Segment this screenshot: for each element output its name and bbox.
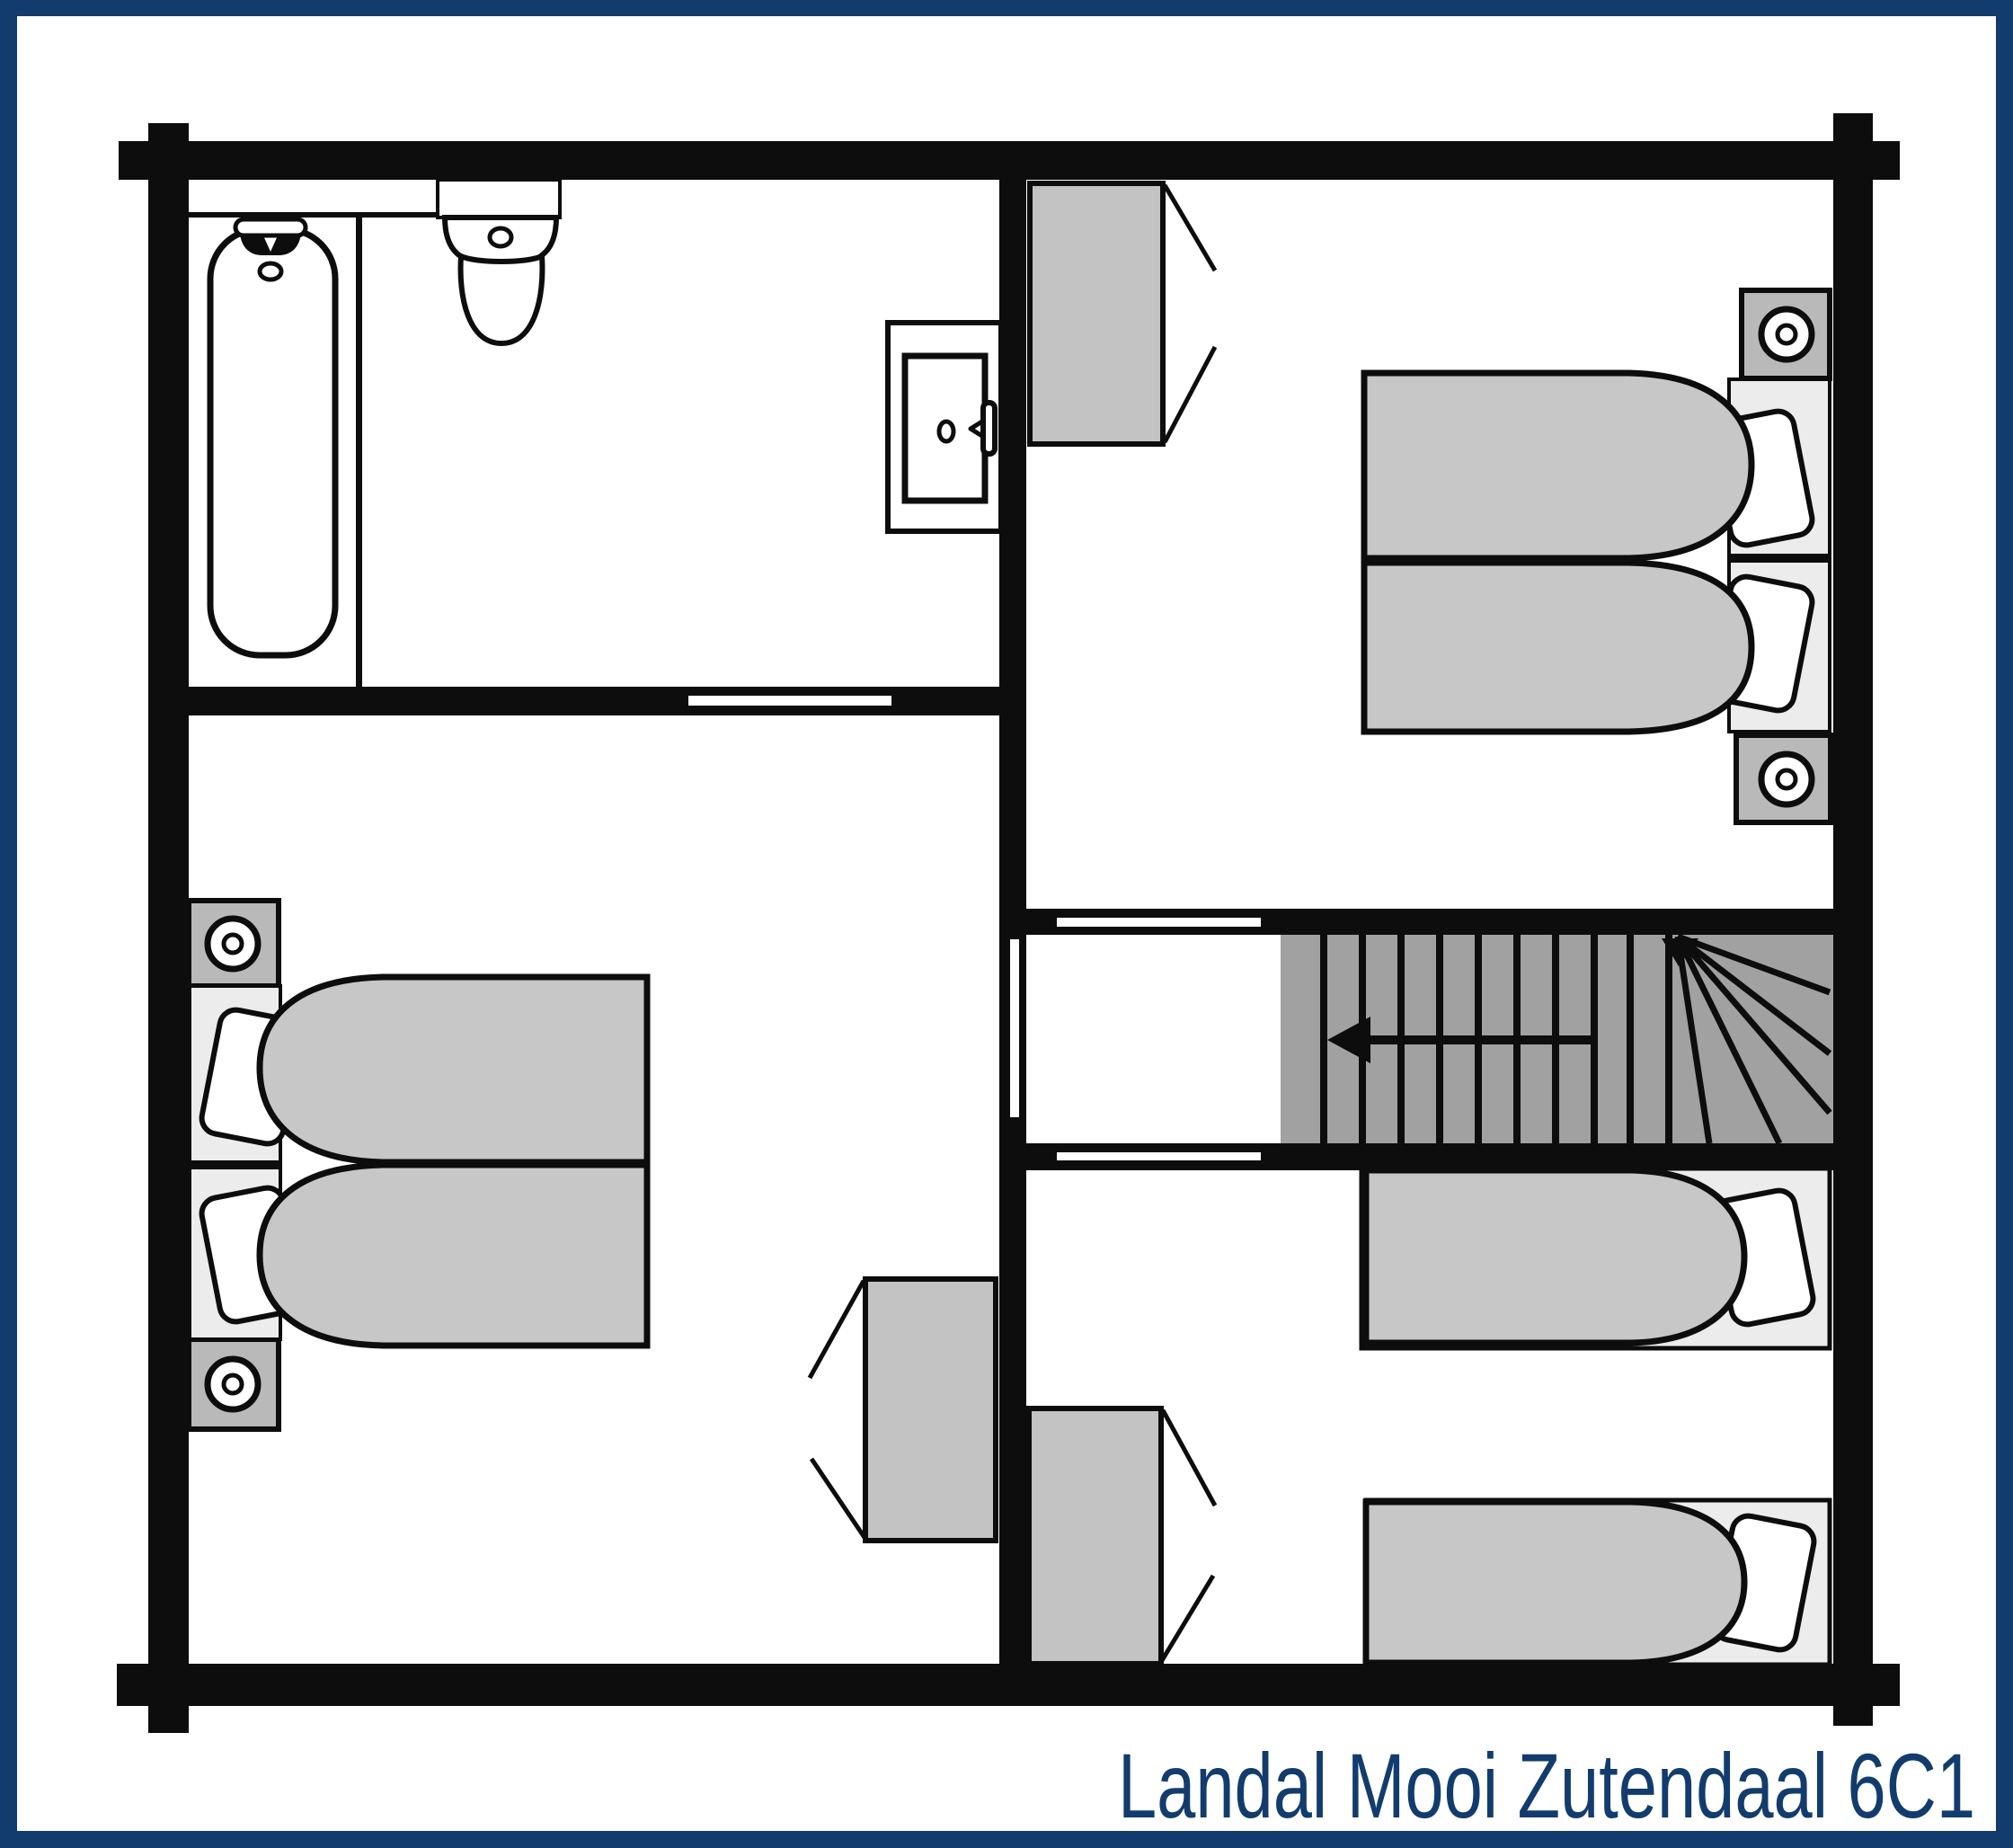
svg-text:Landal Mooi Zutendaal 6C1: Landal Mooi Zutendaal 6C1 [1118, 1735, 1975, 1837]
